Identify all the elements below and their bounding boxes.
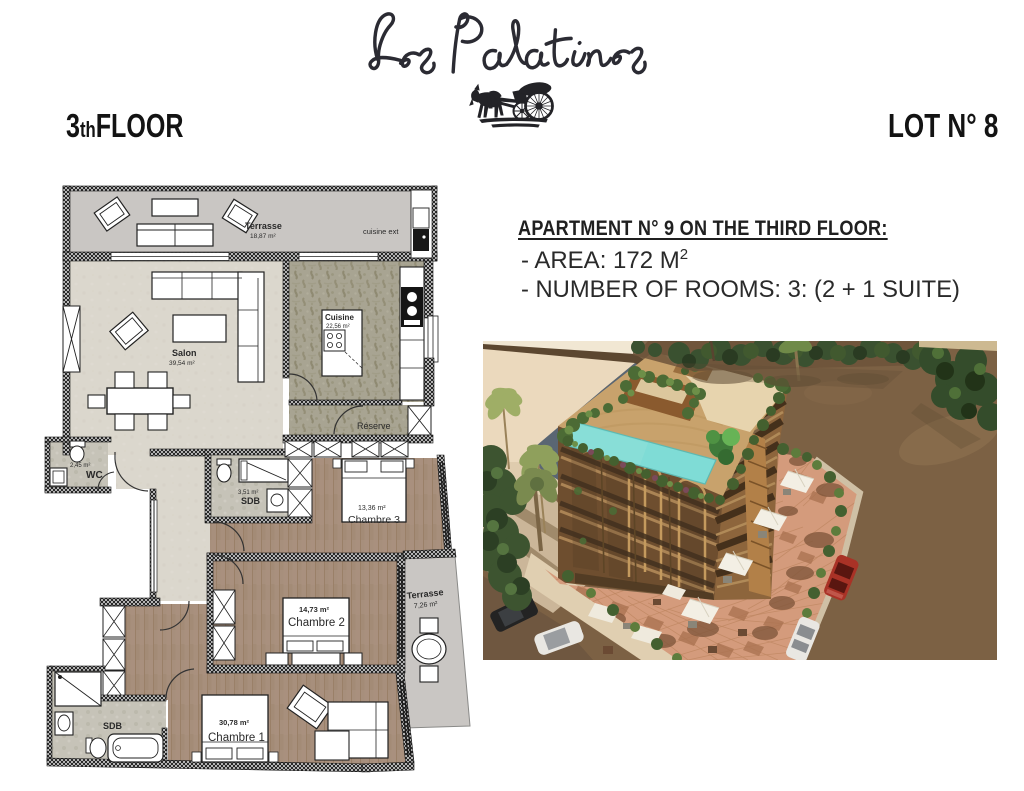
svg-text:Chambre 2: Chambre 2 <box>288 617 345 629</box>
svg-text:SDB: SDB <box>241 496 261 506</box>
svg-text:cuisine ext: cuisine ext <box>363 227 399 236</box>
svg-text:Réserve: Réserve <box>357 421 391 431</box>
svg-text:13,36 m²: 13,36 m² <box>358 505 386 512</box>
svg-text:Terrasse: Terrasse <box>245 221 282 231</box>
svg-text:30,78 m²: 30,78 m² <box>219 718 250 727</box>
svg-text:2,45 m²: 2,45 m² <box>70 463 90 469</box>
svg-text:14,73 m²: 14,73 m² <box>299 605 330 614</box>
svg-text:WC: WC <box>86 470 103 481</box>
svg-text:22,56 m²: 22,56 m² <box>326 324 350 330</box>
svg-text:Chambre 3: Chambre 3 <box>348 514 400 526</box>
svg-text:Cuisine: Cuisine <box>325 313 354 322</box>
svg-text:Chambre 1: Chambre 1 <box>208 732 265 744</box>
svg-text:18,87 m²: 18,87 m² <box>250 233 276 240</box>
svg-text:SDB: SDB <box>103 721 123 731</box>
svg-text:Salon: Salon <box>172 348 197 358</box>
svg-text:39,54 m²: 39,54 m² <box>169 360 195 367</box>
